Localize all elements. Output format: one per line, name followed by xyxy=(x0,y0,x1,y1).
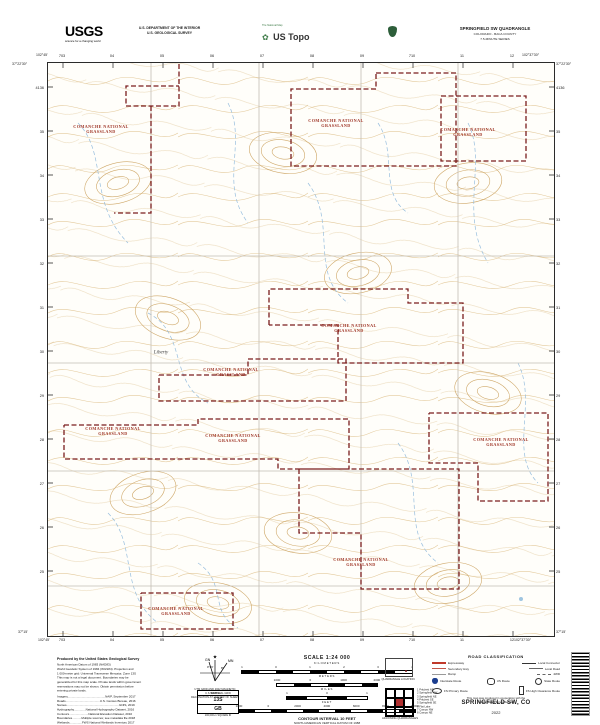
grassland-label: COMANCHE NATIONAL GRASSLAND xyxy=(205,433,260,444)
fs-primary-icon xyxy=(432,688,442,694)
grid-tick-label: 32 xyxy=(26,262,44,266)
credits-block: Produced by the United States Geological… xyxy=(57,657,197,725)
grid-tick-label: 28 xyxy=(26,438,44,442)
map-drawing xyxy=(48,63,554,636)
grid-tick-label: 34 xyxy=(26,174,44,178)
grid-tick-label: 31 xyxy=(26,306,44,310)
scale-number: 1 xyxy=(366,691,368,695)
grassland-label: COMANCHE NATIONAL GRASSLAND xyxy=(308,118,363,129)
department-heading: U.S. DEPARTMENT OF THE INTERIOR U.S. GEO… xyxy=(112,26,227,36)
quad-series: 7.5-MINUTE SERIES xyxy=(420,37,570,42)
secondary-line xyxy=(432,668,446,669)
grid-tick-label: 11 xyxy=(460,638,464,642)
grid-tick-label: 09 xyxy=(360,54,364,58)
quad-title: SPRINGFIELD SW QUADRANGLE xyxy=(420,25,570,32)
adj-cell xyxy=(386,707,395,716)
vertical-datum: NORTH AMERICAN VERTICAL DATUM OF 1988 xyxy=(237,721,417,725)
grid-tick-label: 34 xyxy=(556,174,574,178)
local-road-label: Local Road xyxy=(545,667,560,671)
grid-tick-label: 26 xyxy=(26,526,44,530)
colorado-outline xyxy=(385,658,413,677)
grid-tick-label: 4136 xyxy=(556,86,574,90)
adj-cell xyxy=(395,707,404,716)
grassland-label: COMANCHE NATIONAL GRASSLAND xyxy=(440,127,495,138)
grassland-label-line2: GRASSLAND xyxy=(440,132,495,137)
source-credit-lines: Imagery.................................… xyxy=(57,695,197,725)
scale-number: 6000 xyxy=(353,704,360,708)
grid-tick-label: 31 xyxy=(556,306,574,310)
interstate-shield-icon xyxy=(432,678,438,684)
adj-cell xyxy=(404,698,413,707)
datum-lines: North American Datum of 1983 (NAD83)Worl… xyxy=(57,663,197,693)
grid-tick-label: 703 xyxy=(59,54,65,58)
usng-caption: 100,000-m SQUARE ID xyxy=(197,714,239,717)
dept-line2: U.S. GEOLOGICAL SURVEY xyxy=(112,31,227,36)
grid-tick-label: 05 xyxy=(160,54,164,58)
grid-tick-label: 09 xyxy=(360,638,364,642)
mi-numbers: 101 xyxy=(287,691,367,696)
grid-tick-label: 35 xyxy=(26,130,44,134)
svg-text:★: ★ xyxy=(213,655,218,661)
grid-tick-label: 33 xyxy=(26,218,44,222)
scale-number: 0 xyxy=(326,691,328,695)
svg-text:MN: MN xyxy=(228,659,234,663)
fs-high-label: FS High Clearance Route xyxy=(526,689,560,693)
usgs-logo-text: USGS xyxy=(65,24,103,38)
ustopo-flower-icon: ✿ xyxy=(262,33,269,42)
usng-diagram: U.S. NATIONAL GRID 13S GB 100,000-m SQUA… xyxy=(197,690,239,717)
grid-labels-top: 7030405060708097101112 xyxy=(47,54,553,60)
grid-tick-label: 05 xyxy=(160,638,164,642)
scale-number: 1000 xyxy=(340,678,347,682)
grid-labels-bottom: 7030405060708097101112 xyxy=(47,638,553,644)
sheet-title: SPRINGFIELD SW, CO xyxy=(432,700,560,706)
state-route-label: State Route xyxy=(544,679,560,683)
grid-tick-label: 27 xyxy=(26,482,44,486)
ustopo-title: US Topo xyxy=(273,32,309,42)
grid-tick-label: 06 xyxy=(210,638,214,642)
4wd-line xyxy=(537,674,551,675)
scale-number: 4000 xyxy=(324,704,331,708)
grid-tick-label: 11 xyxy=(460,54,464,58)
state-locator xyxy=(385,658,413,677)
svg-text:0°16': 0°16' xyxy=(207,665,214,669)
adj-cell xyxy=(404,707,413,716)
4wd-label: 4WD xyxy=(553,672,560,676)
grid-tick-label: 08 xyxy=(310,54,314,58)
scale-number: 0 xyxy=(267,704,269,708)
sheet-year: 2022 xyxy=(432,710,560,715)
corner-tl-lat: 37°22'30″ xyxy=(12,62,27,66)
us-route-label: US Route xyxy=(497,679,510,683)
fs-primary-label: FS Primary Route xyxy=(444,689,468,693)
adj-cell xyxy=(386,689,395,698)
grid-labels-left: 41363534333231302928272625 xyxy=(26,62,44,635)
state-route-icon xyxy=(535,678,542,685)
usng-square: GB xyxy=(198,705,238,713)
grid-tick-label: 08 xyxy=(310,638,314,642)
contour-texture-2 xyxy=(48,63,554,636)
quad-location-dot xyxy=(405,670,407,672)
adjoining-grid xyxy=(385,688,414,717)
scale-number: 1000 xyxy=(236,704,243,708)
place-label-liberty: Liberty xyxy=(154,351,168,356)
grid-labels-right: 41363534333231302928272625 xyxy=(556,62,574,635)
grid-tick-label: 710 xyxy=(409,54,415,58)
secondary-label: Secondary Hwy xyxy=(448,667,469,671)
scale-number: 0 xyxy=(275,665,277,669)
grassland-label-line2: GRASSLAND xyxy=(73,129,128,134)
grid-tick-label: 29 xyxy=(556,394,574,398)
grassland-label-line2: GRASSLAND xyxy=(148,611,203,616)
scale-number: 1 xyxy=(241,665,243,669)
map-area: COMANCHE NATIONAL GRASSLAND COMANCHE NAT… xyxy=(47,62,555,637)
grassland-label: COMANCHE NATIONAL GRASSLAND xyxy=(85,426,140,437)
map-sheet: USGS science for a changing world U.S. D… xyxy=(0,0,600,725)
grid-tick-label: 710 xyxy=(409,638,415,642)
road-classification: ROAD CLASSIFICATION Expressway Local Con… xyxy=(432,654,560,705)
grassland-label-line2: GRASSLAND xyxy=(205,438,260,443)
adj-cell xyxy=(404,689,413,698)
ramp-label: Ramp xyxy=(448,672,456,676)
grid-tick-label: 4136 xyxy=(26,86,44,90)
forest-service-shield-icon xyxy=(388,26,397,37)
scale-number: 2 xyxy=(343,665,345,669)
scale-number: 3 xyxy=(377,665,379,669)
grid-tick-label: 12 xyxy=(510,638,514,642)
grid-tick-label: 30 xyxy=(26,350,44,354)
local-road-line xyxy=(529,668,543,669)
grid-tick-label: 32 xyxy=(556,262,574,266)
fs-high-clearance-icon xyxy=(519,686,524,695)
grid-tick-label: 26 xyxy=(556,526,574,530)
grassland-label-line2: GRASSLAND xyxy=(203,372,258,377)
adj-cell-current xyxy=(395,698,404,707)
grid-tick-label: 29 xyxy=(26,394,44,398)
usng-zone: 13S xyxy=(198,696,238,705)
local-connector-label: Local Connector xyxy=(538,661,560,665)
barcode xyxy=(571,652,590,716)
scale-number: 1000 xyxy=(274,678,281,682)
quad-heading: SPRINGFIELD SW QUADRANGLE COLORADO - BAC… xyxy=(420,25,570,42)
scale-number: 1 xyxy=(286,691,288,695)
m-numbers: 1000010002000 xyxy=(277,678,377,683)
grassland-label-line2: GRASSLAND xyxy=(85,431,140,436)
us-route-shield-icon xyxy=(487,678,495,685)
usgs-tagline: science for a changing world xyxy=(65,39,103,43)
grid-tick-label: 04 xyxy=(110,638,114,642)
grid-tick-label: 04 xyxy=(110,54,114,58)
ustopo-logo: The National Map ✿ US Topo xyxy=(262,24,309,45)
pond xyxy=(519,597,523,601)
scale-number: 1 xyxy=(309,665,311,669)
produced-by-title: Produced by the United States Geological… xyxy=(57,657,197,662)
local-connector-line xyxy=(522,663,536,664)
scale-number: 2000 xyxy=(294,704,301,708)
grassland-label-line2: GRASSLAND xyxy=(473,442,528,447)
ramp-line xyxy=(432,674,446,675)
grid-tick-label: 703 xyxy=(59,638,65,642)
svg-text:8°: 8° xyxy=(221,666,224,670)
adj-cell xyxy=(386,698,395,707)
grid-tick-label: 07 xyxy=(260,638,264,642)
road-class-header: ROAD CLASSIFICATION xyxy=(432,654,560,659)
grid-tick-label: 30 xyxy=(556,350,574,354)
grassland-label-line2: GRASSLAND xyxy=(321,328,376,333)
grid-tick-label: 33 xyxy=(556,218,574,222)
grassland-label: COMANCHE NATIONAL GRASSLAND xyxy=(473,437,528,448)
grid-tick-label: 35 xyxy=(556,130,574,134)
adjoining-caption: ADJOINING QUADRANGLES xyxy=(370,717,430,721)
adj-cell xyxy=(395,689,404,698)
grid-tick-label: 28 xyxy=(556,438,574,442)
grassland-label-line2: GRASSLAND xyxy=(308,123,363,128)
locator-caption: QUADRANGLE LOCATION xyxy=(372,678,424,682)
grassland-label: COMANCHE NATIONAL GRASSLAND xyxy=(203,367,258,378)
grid-tick-label: 27 xyxy=(556,482,574,486)
expressway-line xyxy=(432,662,446,664)
scale-number: 0 xyxy=(309,678,311,682)
expressway-label: Expressway xyxy=(448,661,464,665)
usgs-logo: USGS science for a changing world xyxy=(65,24,103,43)
grid-tick-label: 06 xyxy=(210,54,214,58)
grassland-label: COMANCHE NATIONAL GRASSLAND xyxy=(148,606,203,617)
grassland-label-line2: GRASSLAND xyxy=(333,562,388,567)
declination-arrows: ★ GN MN 0°16' 8° xyxy=(190,653,240,683)
grid-tick-label: 25 xyxy=(556,570,574,574)
svg-text:GN: GN xyxy=(205,658,211,662)
interstate-label: Interstate Route xyxy=(440,679,461,683)
grid-tick-label: 07 xyxy=(260,54,264,58)
grid-tick-label: 25 xyxy=(26,570,44,574)
grid-tick-label: 12 xyxy=(510,54,514,58)
grassland-label: COMANCHE NATIONAL GRASSLAND xyxy=(333,557,388,568)
grassland-label: COMANCHE NATIONAL GRASSLAND xyxy=(73,124,128,135)
grassland-label: COMANCHE NATIONAL GRASSLAND xyxy=(321,323,376,334)
